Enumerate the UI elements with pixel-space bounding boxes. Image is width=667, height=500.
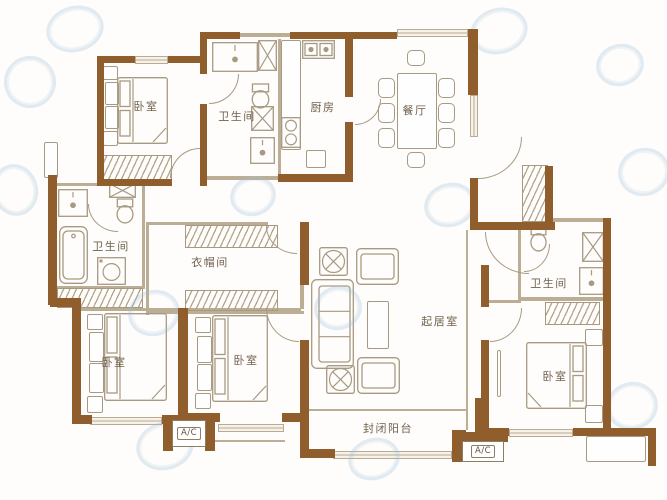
wall-segment (200, 32, 240, 39)
room-label-bathroom-right: 卫生间 (530, 275, 568, 291)
furniture-washer (97, 257, 126, 285)
furniture-rect (197, 336, 212, 363)
window (218, 424, 284, 432)
furniture-rect (87, 314, 103, 330)
furniture-rect (195, 393, 211, 409)
furniture-xbox (582, 232, 604, 262)
window (90, 417, 162, 425)
room-label-cloakroom: 衣帽间 (191, 254, 229, 270)
door-arc (485, 232, 529, 274)
wall-segment (282, 413, 309, 422)
room-label-enclosed-balcony: 封闭阳台 (363, 420, 413, 436)
window (397, 29, 468, 37)
furniture-rect (306, 150, 326, 168)
watermark (613, 142, 667, 202)
wardrobe-hatch (100, 155, 172, 180)
wall-segment (303, 449, 335, 458)
wall-segment (278, 174, 348, 182)
furniture-xcircle (319, 247, 348, 276)
furniture-basin (579, 267, 604, 295)
ac-label-left: A/C (177, 427, 201, 440)
furniture-basin (212, 42, 258, 72)
window (135, 56, 168, 64)
wall-segment (345, 39, 353, 97)
thin-wall (142, 183, 145, 289)
furniture-xbox (258, 40, 277, 71)
furniture-rect (378, 103, 395, 123)
wall-segment (481, 340, 489, 432)
furniture-sink2 (302, 40, 335, 59)
room-label-bedroom-bottom-middle: 卧室 (234, 352, 259, 368)
furniture-armchair (356, 248, 399, 285)
door-arc (209, 74, 239, 104)
window (470, 95, 478, 137)
floor-plan: 卧室 卫生间 厨房 餐厅 卫生间 衣帽间 起居室 卫生间 卧室 卧室 卧室 封闭… (0, 0, 667, 500)
wall-segment (205, 417, 215, 451)
wall-segment (300, 222, 309, 285)
thin-wall (300, 285, 304, 309)
ac-label-right: A/C (471, 445, 495, 458)
furniture-rect (438, 103, 455, 123)
furniture-rect (586, 436, 646, 462)
ac-platform-right: A/C (462, 441, 504, 462)
furniture-rect (44, 142, 58, 178)
watermark (591, 39, 648, 92)
room-label-bedroom-bottom-left: 卧室 (102, 354, 127, 370)
ac-platform-left: A/C (172, 420, 206, 447)
watermark (0, 159, 44, 221)
thin-wall (215, 440, 285, 442)
watermark (41, 0, 109, 59)
wall-segment (97, 56, 104, 186)
wall-segment (545, 166, 553, 228)
room-label-dining-room: 餐厅 (403, 102, 428, 118)
wall-segment (470, 222, 555, 230)
furniture-rect (103, 131, 118, 146)
wall-segment (48, 175, 57, 305)
door-arc (266, 226, 297, 254)
room-label-bedroom-bottom-right: 卧室 (543, 368, 568, 384)
furniture-rect (103, 66, 118, 80)
wall-segment (200, 104, 207, 186)
furniture-toilet (114, 198, 136, 224)
wardrobe-hatch (185, 290, 278, 311)
furniture-basin (58, 189, 88, 217)
furniture-rect (438, 78, 455, 98)
furniture-rect (585, 329, 603, 346)
room-label-bathroom-top: 卫生间 (218, 108, 256, 124)
wardrobe-hatch (545, 302, 600, 325)
thin-wall (309, 409, 466, 411)
wall-segment (648, 434, 656, 466)
wall-segment (345, 122, 353, 182)
furniture-rect (438, 128, 455, 148)
room-label-living-room: 起居室 (421, 313, 459, 329)
furniture-rect (378, 78, 395, 98)
furniture-stove (281, 117, 301, 148)
furniture-tub (59, 226, 88, 284)
wall-segment (178, 308, 188, 415)
door-arc (478, 137, 522, 179)
room-label-bathroom-left: 卫生间 (92, 238, 130, 254)
door-arc (170, 148, 200, 178)
room-label-bedroom-top-left: 卧室 (134, 98, 159, 114)
door-arc (266, 308, 299, 342)
watermark (343, 432, 404, 486)
thin-wall (553, 218, 605, 222)
wall-segment (470, 178, 478, 226)
furniture-xcircle (326, 365, 355, 394)
watermark (0, 50, 62, 114)
furniture-rect (407, 50, 425, 66)
furniture-rect (367, 301, 389, 349)
furniture-rect (585, 405, 603, 423)
wall-segment (72, 415, 92, 424)
thin-wall (521, 297, 605, 301)
thin-wall (466, 230, 468, 430)
furniture-rect (497, 350, 501, 397)
wall-segment (72, 305, 81, 424)
wall-segment (603, 218, 611, 436)
wall-segment (468, 29, 478, 95)
wardrobe-hatch (185, 225, 278, 248)
furniture-rect (197, 364, 212, 391)
room-label-kitchen: 厨房 (311, 99, 336, 115)
furniture-rect (378, 128, 395, 148)
furniture-rect (195, 317, 211, 333)
furniture-armchair (357, 357, 400, 394)
wall-segment (290, 32, 397, 39)
wall-segment (97, 179, 172, 186)
furniture-rect (87, 396, 103, 413)
wall-segment (481, 265, 489, 307)
window (509, 429, 573, 437)
door-arc (355, 99, 381, 125)
door-arc (490, 308, 522, 342)
furniture-rect (407, 152, 425, 168)
wall-segment (300, 340, 309, 458)
thin-wall (240, 33, 290, 37)
wall-segment (573, 428, 656, 436)
furniture-basin (250, 137, 275, 164)
